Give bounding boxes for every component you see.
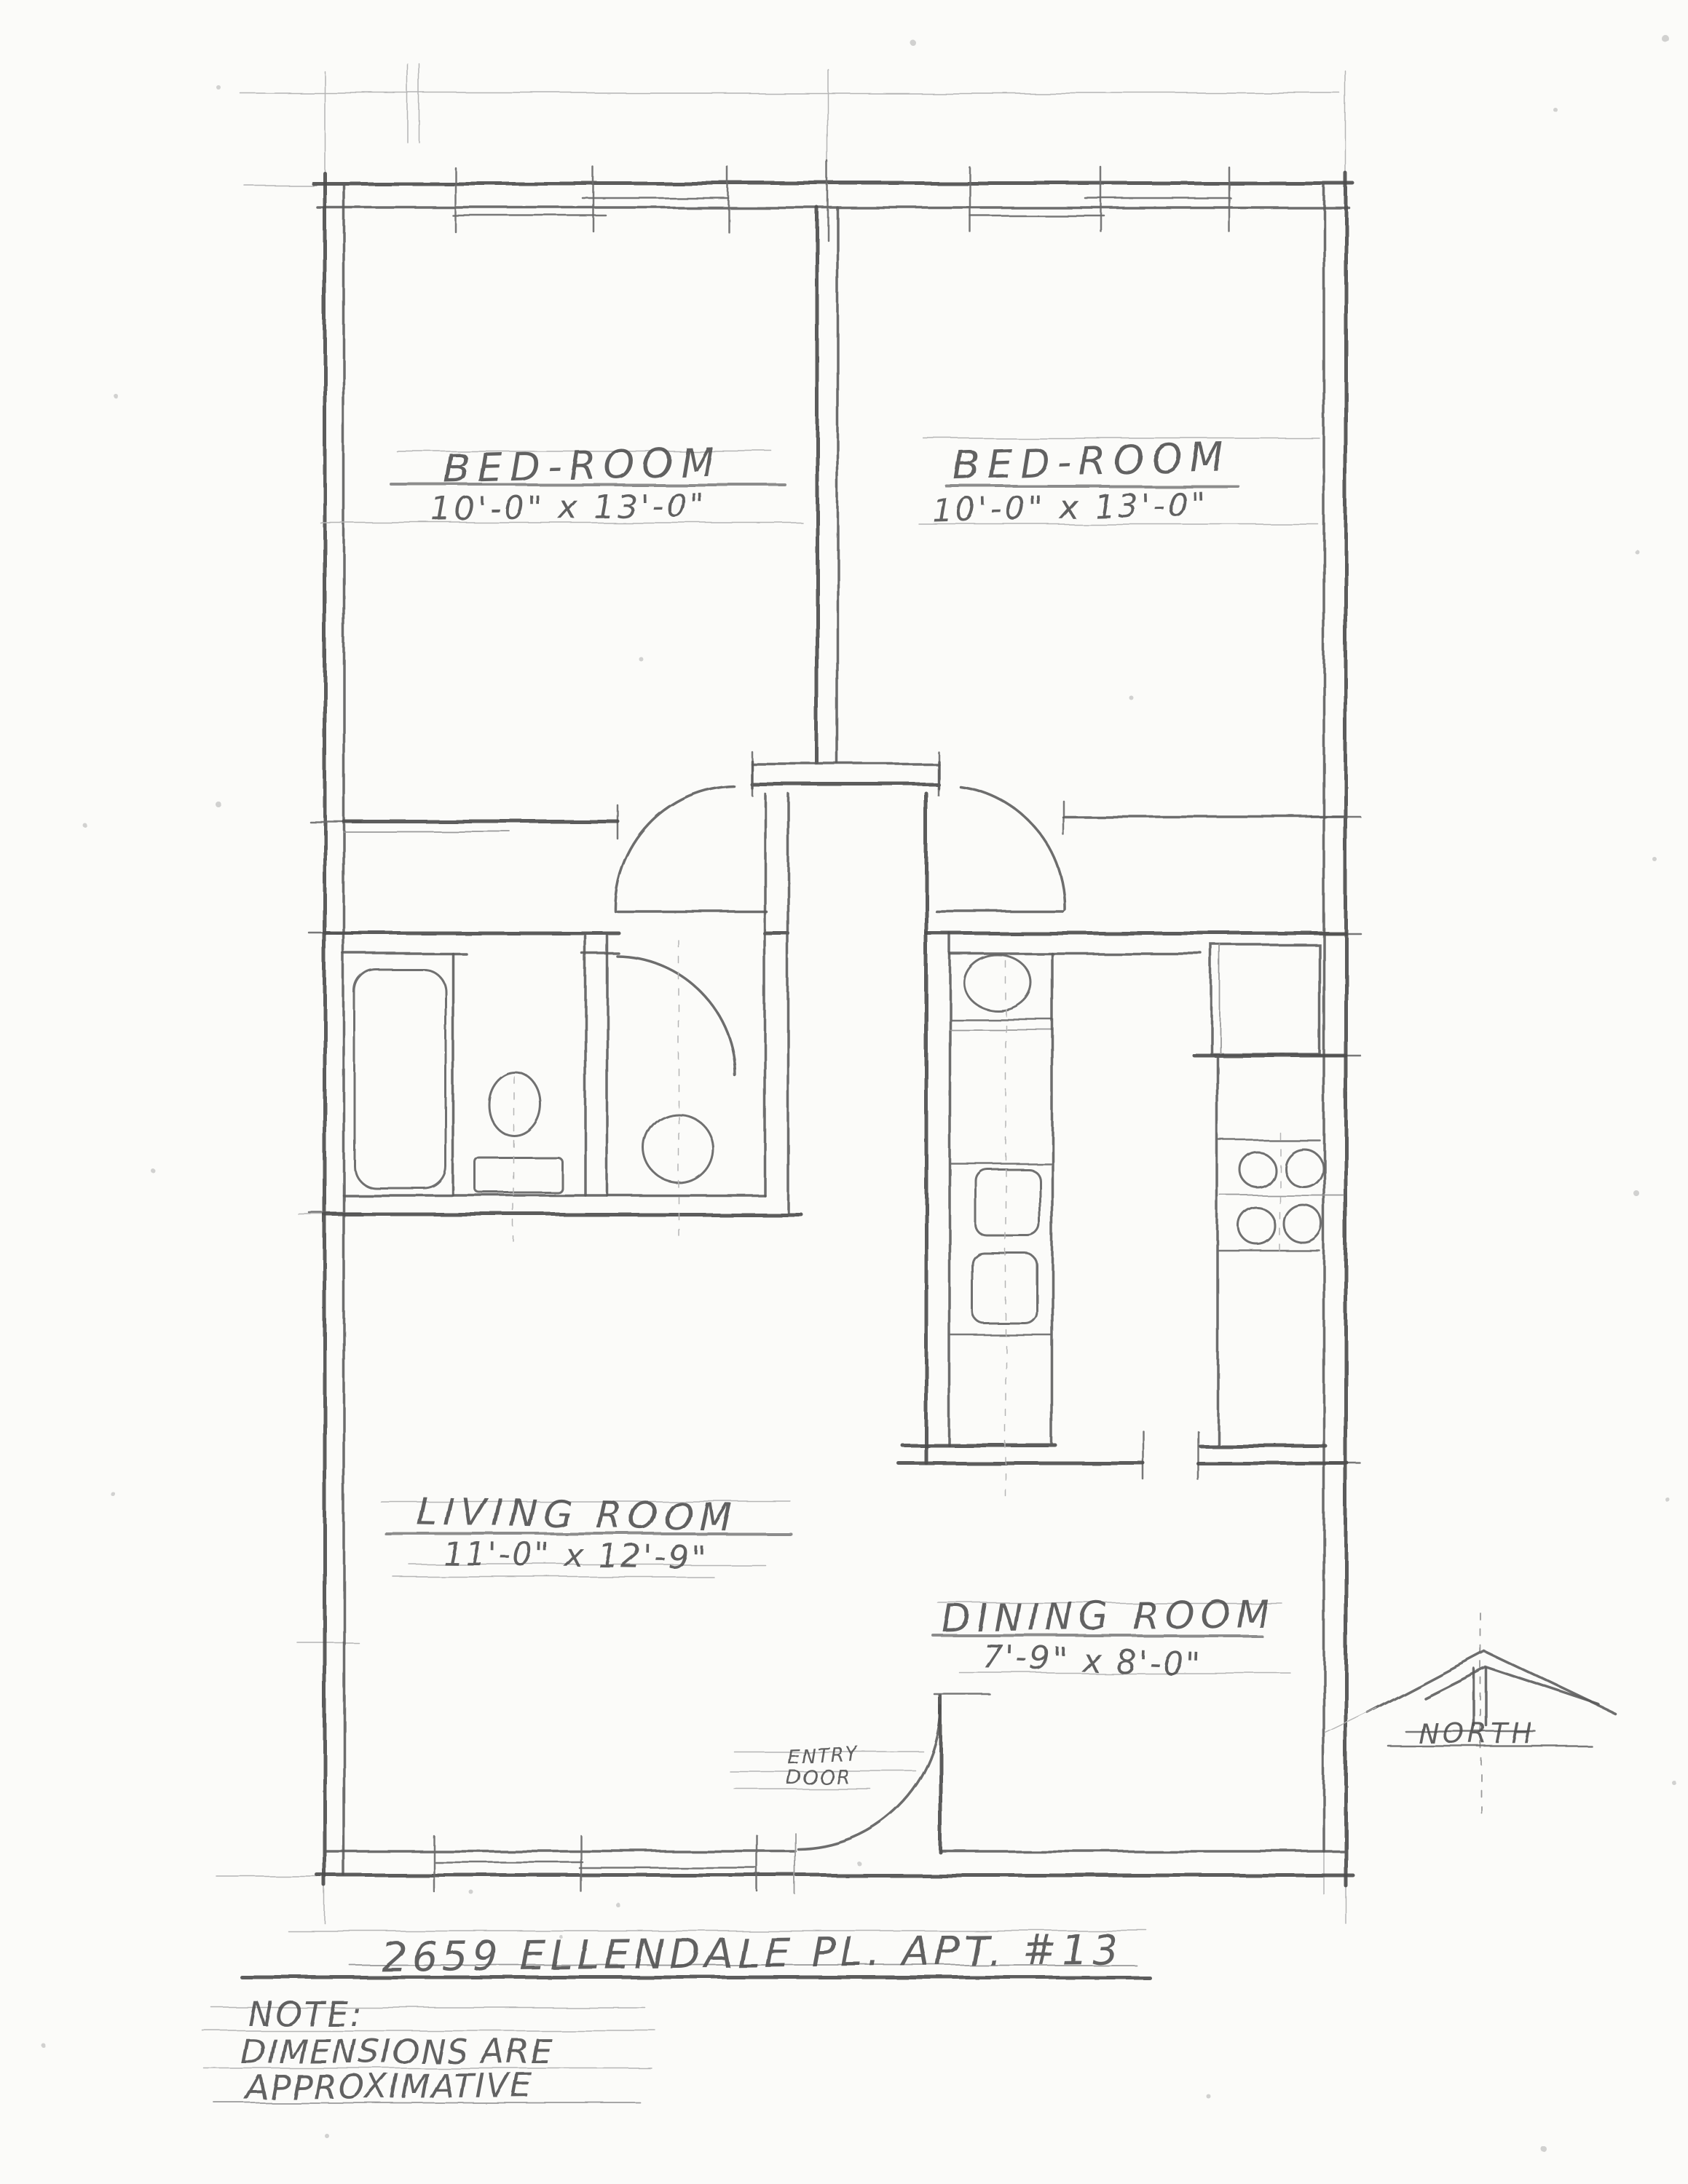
stove-burner-icon bbox=[1240, 1152, 1275, 1187]
toilet-tank-icon bbox=[475, 1158, 562, 1192]
room-label-living-room: LIVING ROOM bbox=[416, 1489, 738, 1540]
room-dims-bedroom-left: 10'-0" x 13'-0" bbox=[431, 487, 707, 529]
room-label-bedroom-right: BED-ROOM bbox=[953, 433, 1231, 488]
kitchen-sink-icon bbox=[964, 955, 1031, 1010]
room-dims-living-room: 11'-0" x 12'-9" bbox=[443, 1535, 708, 1576]
room-label-bedroom-left: BED-ROOM bbox=[443, 439, 722, 492]
floor-plan-drawing: NORTH BED-ROOM 10'-0" x 13'-0" BED-ROOM … bbox=[0, 0, 1688, 2184]
stove-burner-icon bbox=[1285, 1149, 1322, 1187]
construction-lines bbox=[217, 64, 1346, 1923]
room-labels: BED-ROOM 10'-0" x 13'-0" BED-ROOM 10'-0"… bbox=[416, 433, 1275, 1789]
bathroom-door bbox=[618, 957, 735, 1076]
interior-walls bbox=[325, 207, 1347, 1463]
sink-basin-icon bbox=[973, 1254, 1037, 1324]
toilet-icon bbox=[488, 1072, 540, 1136]
sink-basin-icon bbox=[976, 1169, 1040, 1236]
north-arrow: NORTH bbox=[1325, 1613, 1615, 1816]
bedroom-left-door bbox=[615, 786, 766, 911]
refrigerator-icon bbox=[1212, 945, 1320, 1054]
room-label-dining-room: DINING ROOM bbox=[942, 1592, 1274, 1642]
stove-burner-icon bbox=[1239, 1208, 1275, 1244]
room-dims-dining-room: 7'-9" x 8'-0" bbox=[982, 1639, 1203, 1683]
kitchen-fixtures bbox=[950, 945, 1346, 1497]
title-block: 2659 ELLENDALE PL. APT. #13 NOTE: DIMENS… bbox=[240, 1926, 1122, 2108]
label-guidelines bbox=[202, 438, 1320, 2103]
stove-burner-icon bbox=[1284, 1205, 1322, 1243]
door-swings bbox=[615, 786, 1065, 1853]
floor-plan-scan: NORTH BED-ROOM 10'-0" x 13'-0" BED-ROOM … bbox=[0, 0, 1688, 2184]
plan-title: 2659 ELLENDALE PL. APT. #13 bbox=[381, 1926, 1122, 1982]
entry-door-label-line1: ENTRY bbox=[786, 1743, 860, 1768]
note-heading: NOTE: bbox=[248, 1994, 363, 2033]
note-line3: APPROXIMATIVE bbox=[244, 2066, 534, 2108]
bathtub-icon bbox=[355, 970, 446, 1188]
room-dims-bedroom-right: 10'-0" x 13'-0" bbox=[932, 486, 1209, 530]
entry-door-label-line2: DOOR bbox=[786, 1766, 851, 1789]
north-label: NORTH bbox=[1418, 1717, 1536, 1749]
bedroom-right-door bbox=[936, 786, 1065, 911]
